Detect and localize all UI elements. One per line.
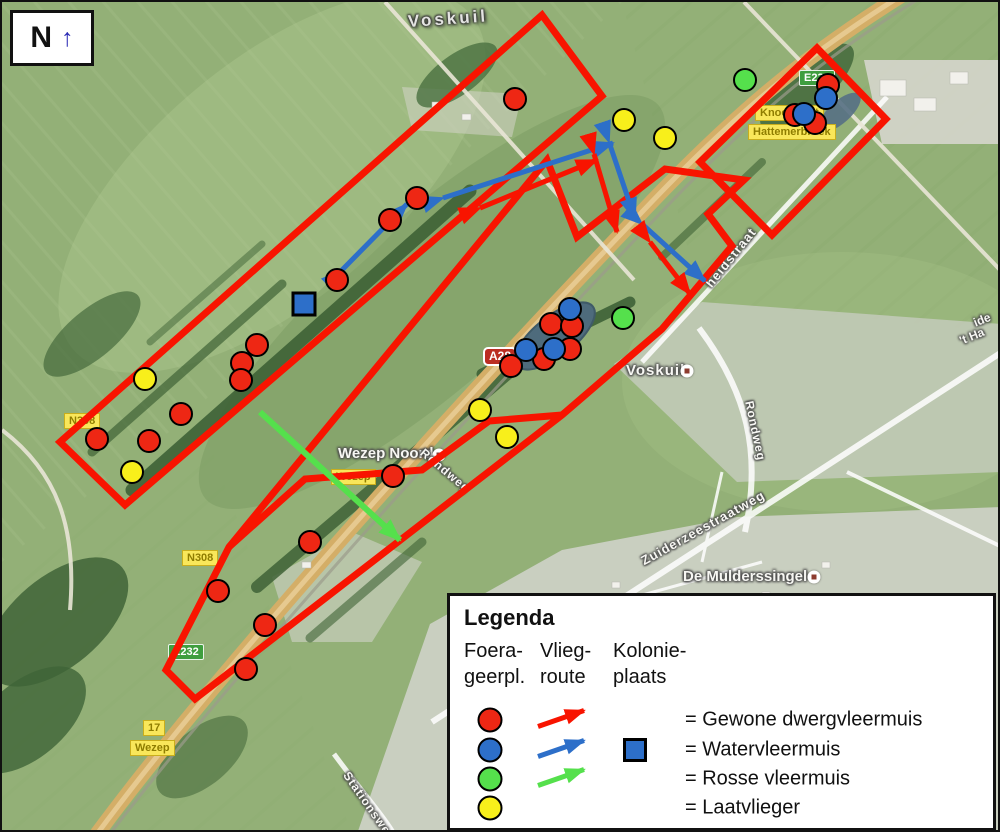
foraging-marker-red xyxy=(381,464,405,488)
legend-foraging-dot-green xyxy=(478,767,503,792)
legend-species-label: = Laatvlieger xyxy=(685,797,800,820)
foraging-marker-yellow xyxy=(120,460,144,484)
north-arrow-icon: ↑ xyxy=(61,24,74,53)
foraging-marker-yellow xyxy=(653,126,677,150)
foraging-marker-red xyxy=(503,87,527,111)
legend-foraging-dot-red xyxy=(478,708,503,733)
legend-colony-square xyxy=(623,738,647,762)
foraging-marker-red xyxy=(169,402,193,426)
legend-species-label: = Watervleermuis xyxy=(685,739,840,762)
foraging-marker-red xyxy=(234,657,258,681)
foraging-marker-red xyxy=(298,530,322,554)
foraging-marker-green xyxy=(611,306,635,330)
legend-foraging-dot-blue xyxy=(478,738,503,763)
foraging-marker-yellow xyxy=(495,425,519,449)
survey-area-boundary xyxy=(700,48,886,235)
foraging-marker-yellow xyxy=(468,398,492,422)
foraging-marker-yellow xyxy=(133,367,157,391)
foraging-marker-red xyxy=(325,268,349,292)
foraging-marker-red xyxy=(229,368,253,392)
north-indicator: N ↑ xyxy=(10,10,94,66)
legend: Legenda Foera-geerpl. Vlieg-route Koloni… xyxy=(447,593,996,831)
bat-survey-map: VoskuilVoskuilWezep NoordDe Mulderssinge… xyxy=(0,0,1000,832)
legend-col-foerageerplaats: Foera-geerpl. xyxy=(464,638,525,690)
legend-species-label: = Rosse vleermuis xyxy=(685,768,850,791)
legend-foraging-dot-yellow xyxy=(478,796,503,821)
foraging-marker-red xyxy=(405,186,429,210)
foraging-marker-blue xyxy=(542,337,566,361)
foraging-marker-green xyxy=(733,68,757,92)
north-letter: N xyxy=(30,21,52,55)
legend-col-vliegroute: Vlieg-route xyxy=(540,638,591,690)
foraging-marker-red xyxy=(253,613,277,637)
colony-marker-square xyxy=(292,292,317,317)
foraging-marker-blue xyxy=(514,338,538,362)
foraging-marker-blue xyxy=(792,102,816,126)
foraging-marker-red xyxy=(206,579,230,603)
foraging-marker-red xyxy=(137,429,161,453)
foraging-marker-red xyxy=(378,208,402,232)
foraging-marker-blue xyxy=(814,86,838,110)
legend-flight-route-arrow-green xyxy=(532,761,604,798)
foraging-marker-blue xyxy=(558,297,582,321)
foraging-marker-yellow xyxy=(612,108,636,132)
legend-title: Legenda xyxy=(464,605,554,631)
legend-species-label: = Gewone dwergvleermuis xyxy=(685,709,922,732)
legend-col-kolonieplaats: Kolonie-plaats xyxy=(613,638,686,690)
foraging-marker-red xyxy=(85,427,109,451)
